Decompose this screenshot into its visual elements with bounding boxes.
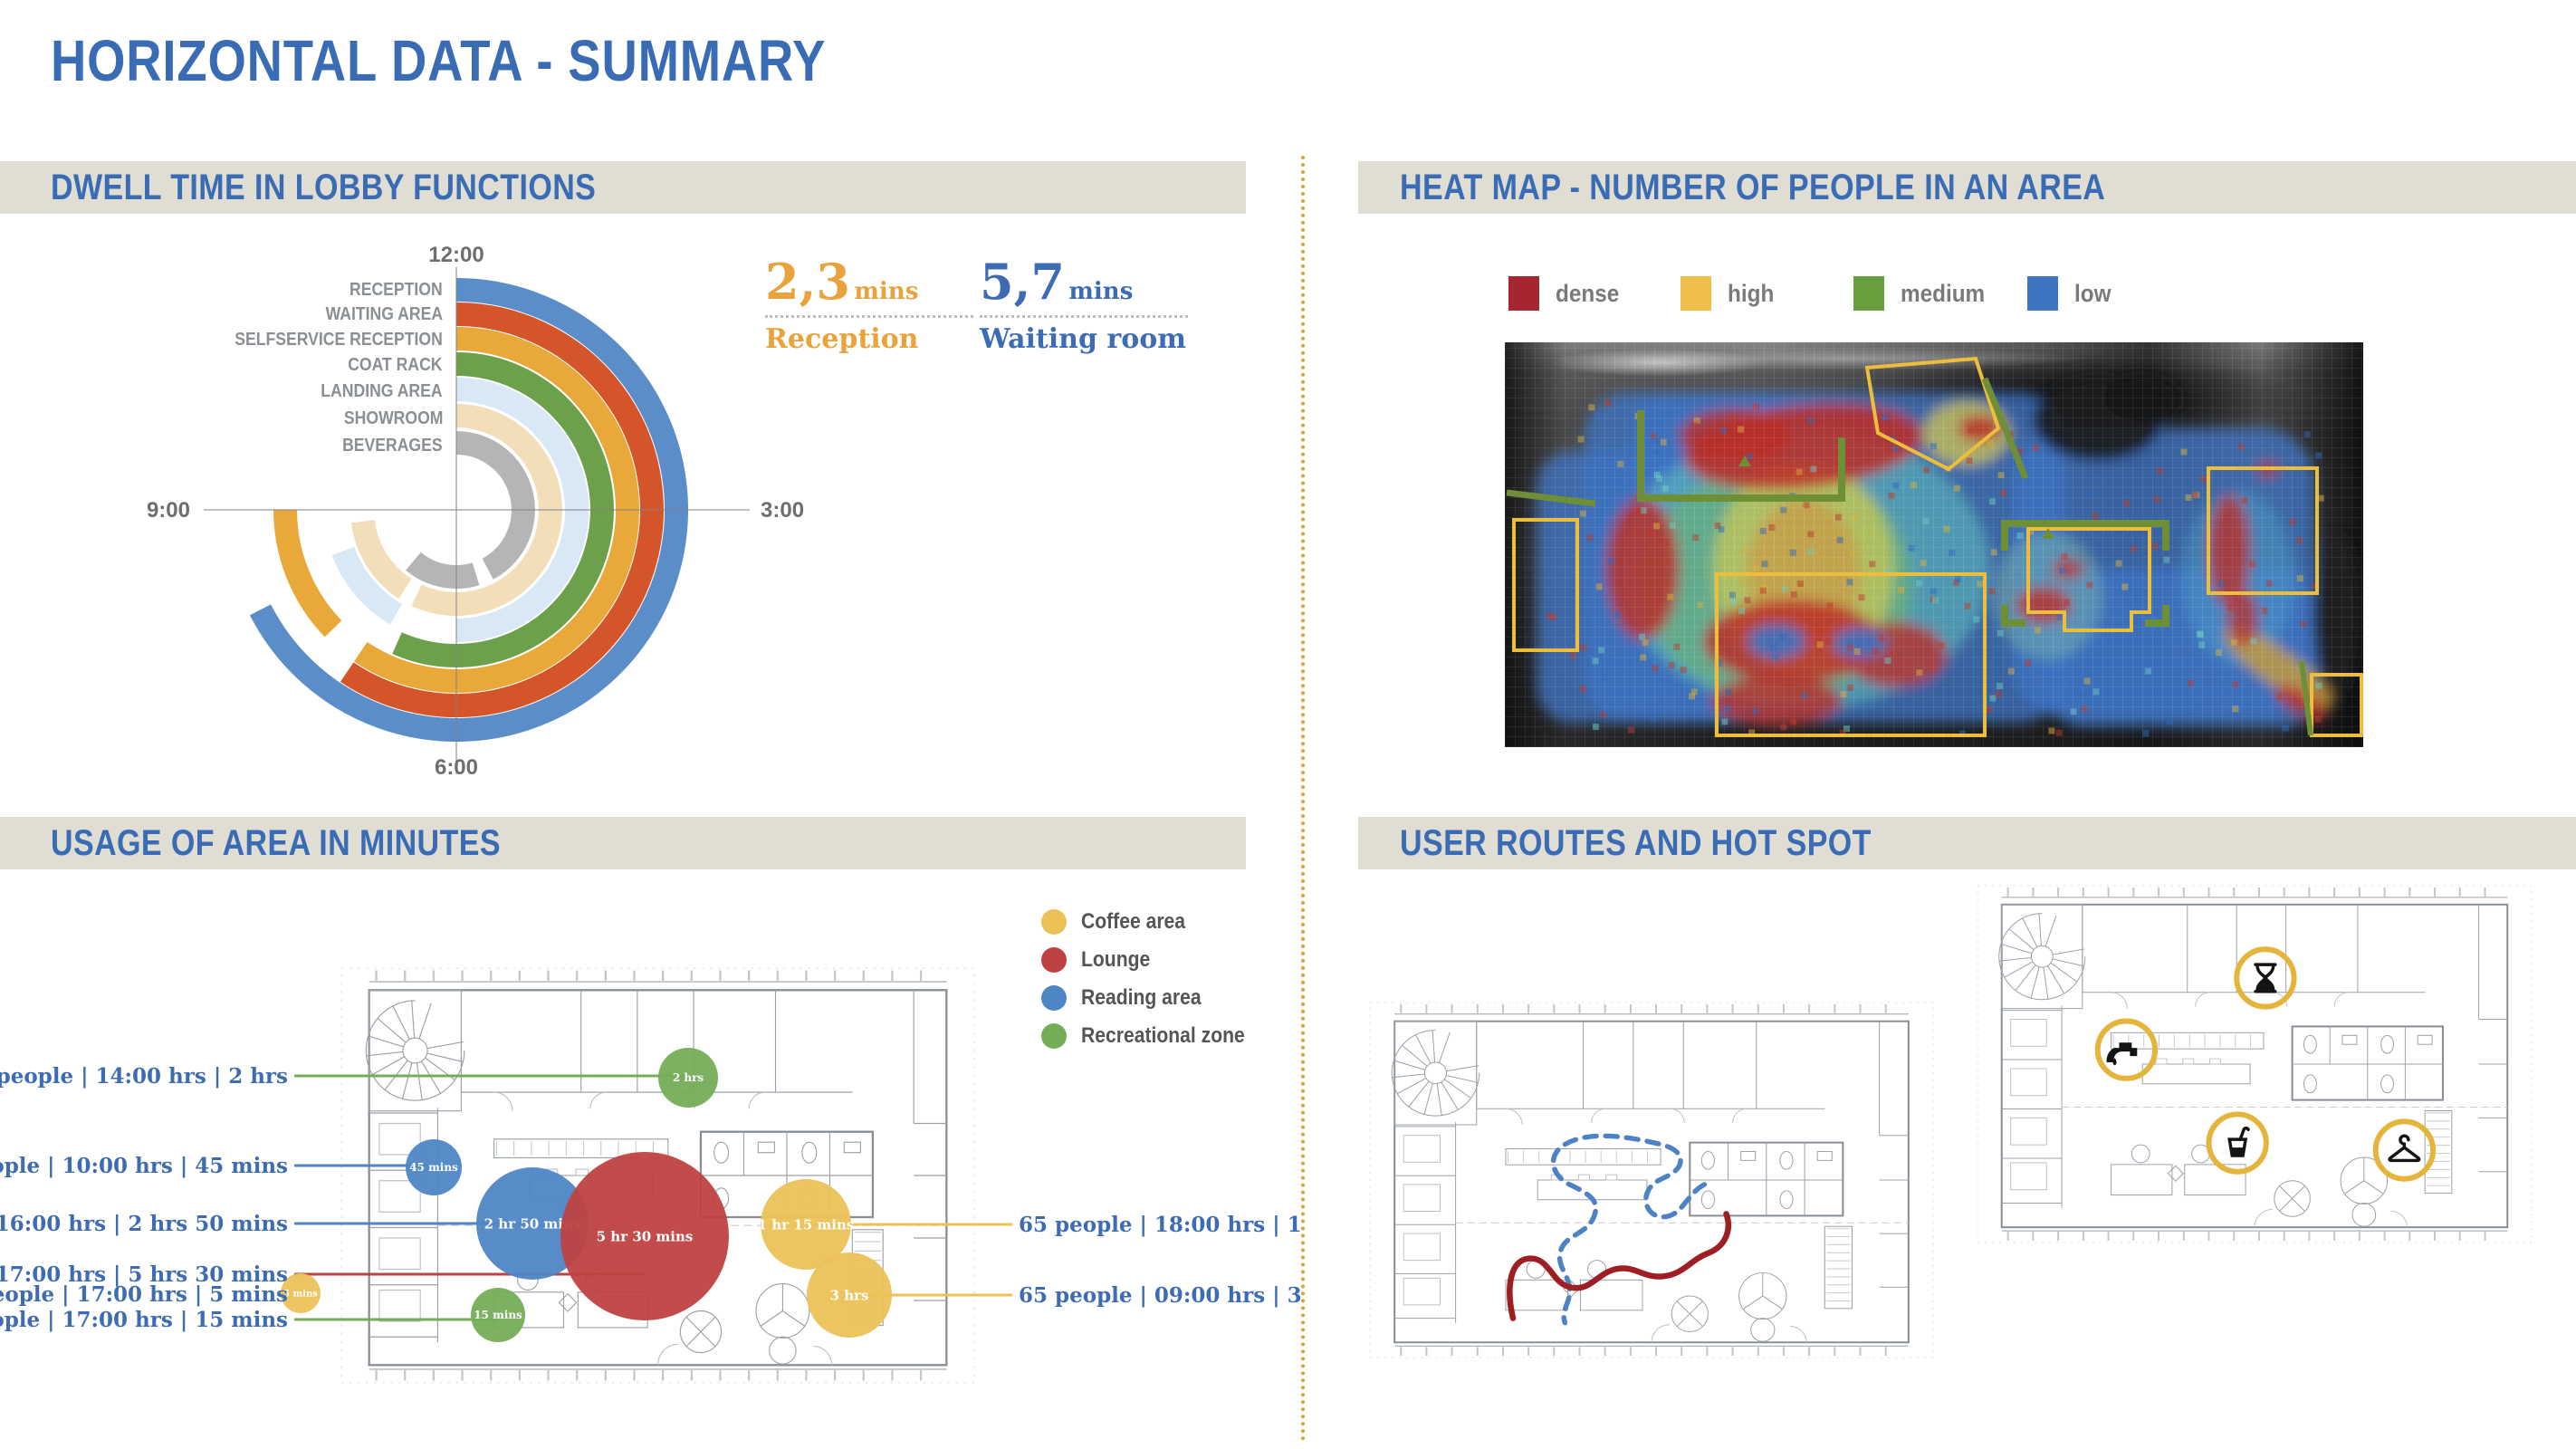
hotspot-ring-icon (2376, 1121, 2433, 1178)
heat-legend-item: dense (1508, 276, 1626, 311)
hourglass-icon (2255, 964, 2275, 992)
stat-unit: mins (1068, 278, 1133, 305)
dwell-category-label: SELFSERVICE RECEPTION (235, 329, 443, 350)
legend-dot-icon (1041, 947, 1067, 973)
zone-outline-green (1985, 379, 2025, 478)
dwell-category-label: RECEPTION (350, 279, 443, 301)
bubble-data-label: 85 people | 17:00 hrs | 15 mins (0, 1308, 288, 1332)
legend-label: Recreational zone (1081, 1023, 1245, 1049)
bubble-data-label: 85 people | 17:00 hrs | 5 mins (0, 1282, 288, 1307)
legend-dot-icon (1041, 909, 1067, 935)
dwell-category-label: COAT RACK (349, 354, 443, 376)
legend-label: dense (1556, 280, 1619, 308)
infographic-page: HORIZONTAL DATA - SUMMARY DWELL TIME IN … (0, 0, 2576, 1449)
legend-label: high (1728, 280, 1774, 308)
usage-legend-item: Recreational zone (1041, 1023, 1267, 1049)
stat-value: 2,3 (765, 253, 850, 311)
hanger-icon (2389, 1136, 2419, 1160)
bubble-data-label: 45 people | 14:00 hrs | 2 hrs (0, 1064, 288, 1089)
legend-dot-icon (1041, 985, 1067, 1011)
hotspot-floor-plan (1977, 885, 2533, 1243)
dwell-category-label: SHOWROOM (343, 408, 443, 429)
zone-outline-green (1507, 493, 1595, 504)
section-title: DWELL TIME IN LOBBY FUNCTIONS (51, 168, 596, 208)
clock-tick-3: 3:00 (761, 498, 804, 523)
hotspot-hanger-icon (2376, 1121, 2433, 1178)
dwell-ring-beverages (456, 443, 523, 569)
bubble-duration-label: 3 hrs (830, 1287, 869, 1303)
zone-outline-yellow (2312, 675, 2361, 735)
zone-outline-yellow (2208, 468, 2317, 593)
dwell-category-label: BEVERAGES (342, 435, 443, 456)
legend-swatch-icon (1681, 276, 1711, 311)
zone-outline-green (2302, 661, 2311, 735)
zone-outline-yellow (1867, 359, 1998, 469)
dwell-category-label: LANDING AREA (321, 380, 443, 402)
hotspot-faucet-icon (2098, 1021, 2155, 1078)
right-panel: densehighmediumlow (1304, 0, 2576, 1449)
usage-legend-item: Lounge (1041, 947, 1267, 973)
bubble-duration-label: 45 mins (409, 1161, 458, 1174)
legend-dot-icon (1041, 1023, 1067, 1049)
hotspot-hourglass-icon (2236, 949, 2294, 1006)
legend-label: medium (1901, 280, 1985, 308)
dotted-rule (765, 315, 973, 318)
page-title: HORIZONTAL DATA - SUMMARY (51, 27, 826, 94)
marker-triangle (1738, 456, 1751, 466)
legend-label: low (2074, 280, 2112, 308)
section-title: USAGE OF AREA IN MINUTES (51, 823, 501, 864)
stat-value: 5,7 (980, 253, 1065, 311)
heat-legend-item: low (2027, 276, 2115, 311)
zone-outline-yellow (2028, 529, 2150, 630)
usage-legend: Coffee areaLoungeReading areaRecreationa… (1041, 909, 1267, 1061)
clock-tick-9: 9:00 (100, 498, 190, 523)
heat-legend-item: high (1681, 276, 1779, 311)
stat-waiting-room: 5,7 mins Waiting room (980, 257, 1188, 355)
section-header-usage: USAGE OF AREA IN MINUTES (0, 817, 1246, 869)
stat-reception: 2,3 mins Reception (765, 257, 973, 355)
legend-label: Reading area (1081, 985, 1202, 1011)
hotspot-drink-icon (2208, 1114, 2265, 1171)
dwell-ring-selfservice-reception (285, 510, 333, 629)
legend-swatch-icon (1508, 276, 1539, 311)
clock-tick-12: 12:00 (402, 243, 511, 268)
zone-outline-green (1641, 410, 1842, 498)
bubble-data-label: 20 people | 10:00 hrs | 45 mins (0, 1154, 288, 1178)
heat-zone-outlines (1505, 342, 2363, 747)
clock-tick-6: 6:00 (402, 755, 511, 781)
hotspot-ring-icon (2208, 1114, 2265, 1171)
heatmap-image (1505, 342, 2363, 747)
legend-label: Lounge (1081, 947, 1150, 973)
heat-legend-item: medium (1853, 276, 1995, 311)
usage-legend-item: Coffee area (1041, 909, 1267, 935)
bubble-duration-label: 5 mins (283, 1290, 318, 1300)
dwell-time-chart: RECEPTIONWAITING AREASELFSERVICE RECEPTI… (0, 214, 1304, 817)
zone-outline-yellow (1717, 574, 1985, 735)
legend-swatch-icon (2027, 276, 2058, 311)
bubble-duration-label: 1 hr 15 mins (758, 1216, 855, 1233)
bubble-data-label: 65 people | 18:00 hrs | 1 hr 15 mins (1019, 1213, 1304, 1237)
heatmap-legend: densehighmediumlow (1304, 276, 2576, 316)
route-dashed-path (1554, 1136, 1705, 1322)
dwell-ring-beverages (413, 561, 475, 577)
routes-floor-plan (1369, 1002, 1934, 1358)
stat-unit: mins (854, 278, 918, 305)
bubble-data-label: 65 people | 09:00 hrs | 3 hrs (1019, 1283, 1304, 1308)
legend-swatch-icon (1853, 276, 1884, 311)
route-solid-path (1509, 1214, 1728, 1318)
bubble-data-label: 45 people | 16:00 hrs | 2 hrs 50 mins (0, 1212, 288, 1236)
zone-outline-yellow (1514, 520, 1577, 650)
bubble-duration-label: 5 hr 30 mins (597, 1228, 694, 1244)
section-header-dwell: DWELL TIME IN LOBBY FUNCTIONS (0, 161, 1246, 214)
bubble-duration-label: 15 mins (474, 1309, 522, 1321)
stat-label: Waiting room (980, 323, 1188, 355)
dwell-category-label: WAITING AREA (326, 303, 443, 325)
usage-bubble-map: 2 hrs45 mins2 hr 50 mins5 hr 30 mins5 mi… (0, 869, 1304, 1449)
bubble-duration-label: 2 hrs (673, 1071, 704, 1084)
stat-label: Reception (765, 323, 973, 355)
legend-label: Coffee area (1081, 909, 1185, 935)
drink-icon (2229, 1128, 2248, 1156)
usage-legend-item: Reading area (1041, 985, 1267, 1011)
dotted-rule (980, 315, 1188, 318)
